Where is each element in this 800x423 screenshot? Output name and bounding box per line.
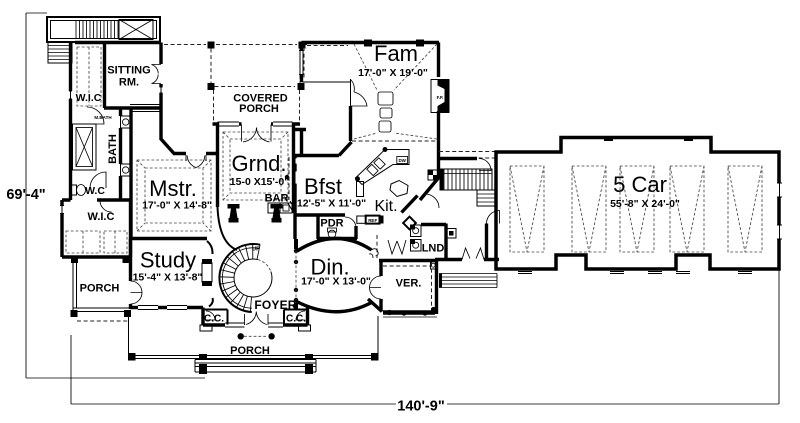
svg-text:F.P.: F.P. (437, 95, 444, 100)
svg-text:C.C.: C.C. (204, 314, 224, 325)
svg-text:PORCH: PORCH (239, 103, 279, 115)
svg-text:Fam: Fam (374, 41, 418, 66)
svg-text:RM.: RM. (119, 77, 139, 89)
svg-text:SITTING: SITTING (107, 65, 150, 77)
svg-text:140'-9": 140'-9" (397, 399, 444, 415)
svg-text:PORCH: PORCH (80, 283, 120, 295)
svg-text:Bfst: Bfst (304, 174, 342, 199)
svg-text:LND: LND (422, 243, 445, 255)
svg-text:55'-8" X 24'-0": 55'-8" X 24'-0" (610, 198, 680, 210)
svg-text:15-0 X15'-0": 15-0 X15'-0" (230, 176, 289, 188)
svg-text:W.I.C: W.I.C (76, 92, 102, 104)
svg-text:15'-4" X 13'-8": 15'-4" X 13'-8" (133, 272, 203, 284)
svg-text:PORCH: PORCH (230, 345, 270, 357)
svg-text:PDR: PDR (320, 218, 343, 230)
svg-text:BATH: BATH (107, 134, 119, 164)
svg-text:Study: Study (140, 248, 196, 273)
svg-text:W.C: W.C (85, 185, 105, 197)
svg-text:REF: REF (368, 218, 377, 223)
svg-text:Grnd.: Grnd. (231, 151, 286, 176)
svg-text:DW: DW (398, 158, 406, 163)
svg-text:W.I.C: W.I.C (88, 211, 115, 223)
svg-text:17'-0" X 14'-8": 17'-0" X 14'-8" (142, 200, 212, 212)
svg-text:5 Car: 5 Car (613, 172, 667, 197)
svg-text:17'-0" X 13'-0": 17'-0" X 13'-0" (301, 276, 371, 288)
svg-text:VER.: VER. (396, 278, 422, 290)
svg-text:Kit.: Kit. (374, 198, 397, 215)
svg-text:M.BATH: M.BATH (94, 115, 111, 120)
svg-text:12'-5" X 11'-0": 12'-5" X 11'-0" (297, 198, 366, 210)
svg-text:17'-0" X 19'-0": 17'-0" X 19'-0" (358, 67, 428, 79)
svg-text:UP: UP (252, 247, 260, 253)
svg-text:Mstr.: Mstr. (149, 176, 197, 201)
svg-text:69'-4": 69'-4" (6, 187, 45, 203)
